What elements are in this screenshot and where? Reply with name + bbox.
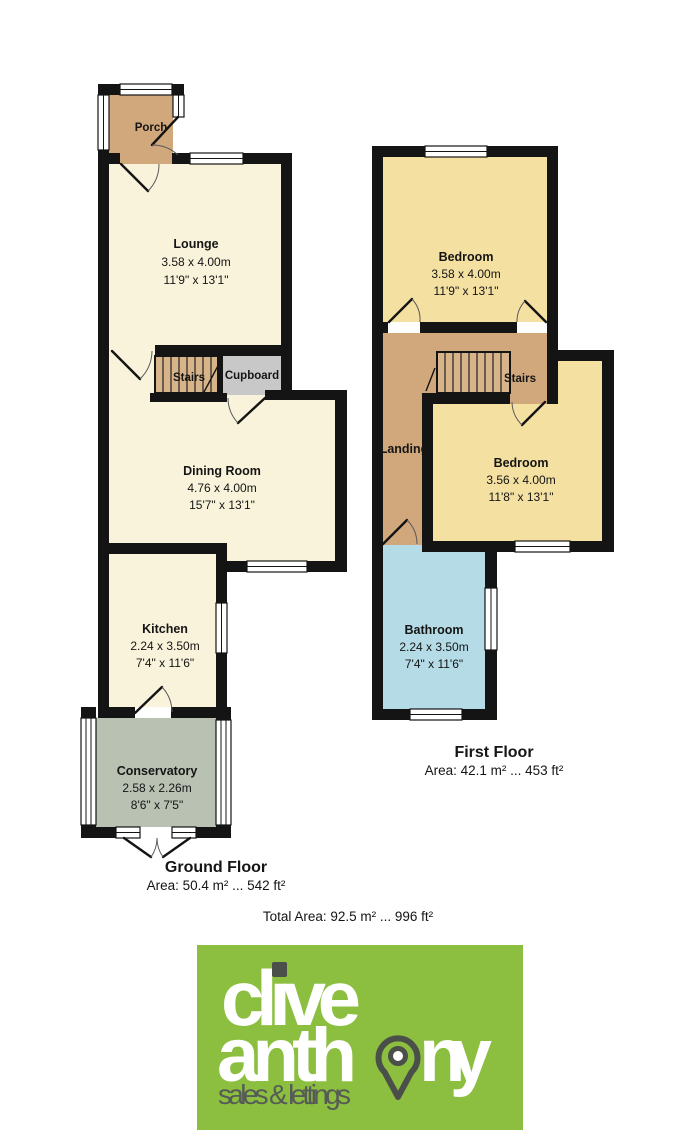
ground-floor-plan: Porch Lounge 3.58 x 4.00m 11'9" x 13'1" …	[81, 84, 347, 893]
bedroom-back-dim-ft: 11'8" x 13'1"	[489, 490, 554, 504]
lounge-label: Lounge	[173, 237, 218, 251]
bedroom-back-dim-m: 3.56 x 4.00m	[486, 473, 555, 487]
dining-extension	[281, 400, 335, 561]
window	[425, 146, 487, 157]
window	[190, 153, 243, 164]
window	[172, 827, 196, 838]
bedroom-back-room-upper	[558, 361, 602, 404]
agency-logo: clive anth ny sales & lettings	[197, 945, 523, 1130]
window	[515, 541, 570, 552]
ground-floor-title: Ground Floor	[165, 859, 267, 876]
bathroom-dim-ft: 7'4" x 11'6"	[405, 657, 463, 671]
window	[98, 95, 109, 150]
total-area: Total Area: 92.5 m² ... 996 ft²	[263, 909, 434, 924]
dining-label: Dining Room	[183, 464, 261, 478]
cupboard-label: Cupboard	[225, 370, 279, 382]
window	[216, 603, 227, 653]
porch-label: Porch	[135, 122, 168, 134]
logo-word-ny: ny	[419, 1013, 492, 1098]
dining-dim-ft: 15'7" x 13'1"	[189, 498, 255, 512]
bathroom-dim-m: 2.24 x 3.50m	[399, 640, 468, 654]
ground-floor-area: Area: 50.4 m² ... 542 ft²	[147, 878, 286, 893]
first-floor-area: Area: 42.1 m² ... 453 ft²	[425, 763, 564, 778]
window	[485, 588, 497, 650]
landing-room	[383, 333, 422, 545]
conservatory-dim-ft: 8'6" x 7'5"	[131, 798, 183, 812]
floorplan-page: Porch Lounge 3.58 x 4.00m 11'9" x 13'1" …	[0, 0, 700, 1147]
dining-dim-m: 4.76 x 4.00m	[187, 481, 256, 495]
bedroom-front-dim-m: 3.58 x 4.00m	[431, 267, 500, 281]
stairs-label: Stairs	[173, 372, 205, 384]
stairs-first	[426, 352, 510, 393]
window	[120, 84, 172, 95]
conservatory-label: Conservatory	[117, 764, 198, 778]
dining-strip	[227, 545, 281, 561]
window	[116, 827, 140, 838]
conservatory-dim-m: 2.58 x 2.26m	[122, 781, 191, 795]
window	[247, 561, 307, 572]
window	[216, 720, 231, 825]
stairs-first-label: Stairs	[504, 373, 536, 385]
kitchen-dim-m: 2.24 x 3.50m	[130, 639, 199, 653]
bathroom-label: Bathroom	[404, 623, 463, 637]
logo-i-dot	[272, 962, 287, 977]
kitchen-label: Kitchen	[142, 622, 188, 636]
bedroom-front-dim-ft: 11'9" x 13'1"	[434, 284, 499, 298]
bedroom-front-label: Bedroom	[439, 250, 494, 264]
first-floor-plan: Bedroom 3.58 x 4.00m 11'9" x 13'1" Stair…	[372, 146, 614, 778]
lounge-dim-ft: 11'9" x 13'1"	[164, 273, 229, 287]
lounge-dim-m: 3.58 x 4.00m	[161, 255, 230, 269]
logo-tagline: sales & lettings	[218, 1079, 351, 1110]
landing-label: Landing	[380, 442, 429, 456]
first-floor-title: First Floor	[454, 744, 533, 761]
window	[81, 718, 96, 825]
kitchen-dim-ft: 7'4" x 11'6"	[136, 656, 194, 670]
window	[410, 709, 462, 720]
bedroom-back-label: Bedroom	[494, 456, 549, 470]
window	[173, 95, 184, 117]
